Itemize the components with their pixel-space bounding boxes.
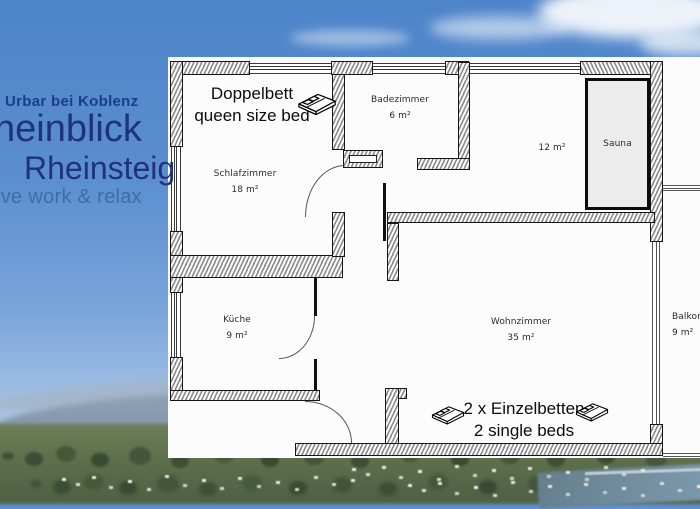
tree-line: [2, 452, 14, 460]
wall-segment: [417, 158, 470, 170]
room-label-12qm: 12 m²: [520, 143, 584, 153]
balcony-railing: [663, 185, 700, 191]
door-arc: [305, 165, 345, 217]
page: { "overlay": { "location": "Urbar bei Ko…: [0, 0, 700, 500]
tagline-text: ive work & relax: [0, 186, 142, 209]
single-bed-icon: [574, 399, 610, 425]
wall-segment: [385, 388, 399, 444]
cloud: [290, 30, 410, 46]
double-bed-icon: [296, 89, 338, 119]
wall-segment: [332, 212, 345, 257]
town-houses: [62, 478, 66, 481]
room-label-kueche: Küche 9 m²: [187, 315, 287, 341]
wall-segment: [295, 443, 663, 456]
partition-wall: [314, 359, 317, 390]
tree-line: [30, 480, 42, 488]
wall-segment: [170, 390, 320, 401]
door-arc: [305, 401, 352, 443]
room-label-balkon: Balkon 9 m²: [672, 312, 700, 338]
balcony-railing: [652, 242, 660, 424]
wall-niche: [349, 155, 377, 163]
wall-segment: [170, 255, 343, 278]
door-leaf: [383, 183, 386, 241]
room-label-badezimmer: Badezimmer 6 m²: [350, 95, 450, 121]
wall-segment: [331, 61, 373, 75]
window-symbol: [250, 63, 331, 74]
window-symbol: [469, 63, 580, 74]
floor-plan: Sauna Schlafzimmer 18 m² Badezimmer 6 m²…: [168, 57, 700, 458]
town-houses: [352, 468, 356, 471]
property-subtitle: Rheinsteig: [24, 150, 175, 187]
room-label-schlafzimmer: Schlafzimmer 18 m²: [195, 169, 295, 195]
property-title: heinblick: [0, 108, 142, 151]
single-bed-icon: [430, 402, 466, 428]
balcony-railing: [663, 453, 700, 458]
wall-segment: [458, 62, 470, 170]
wall-segment: [387, 212, 655, 223]
window-symbol: [373, 63, 445, 74]
wall-segment: [387, 223, 399, 281]
room-label-wohnzimmer: Wohnzimmer 35 m²: [471, 317, 571, 343]
cloud: [430, 16, 570, 40]
room-sauna: Sauna: [585, 78, 650, 210]
window-symbol: [171, 293, 181, 357]
room-label-sauna: Sauna: [603, 139, 632, 149]
partition-wall: [314, 278, 317, 316]
town-houses: [408, 484, 412, 487]
